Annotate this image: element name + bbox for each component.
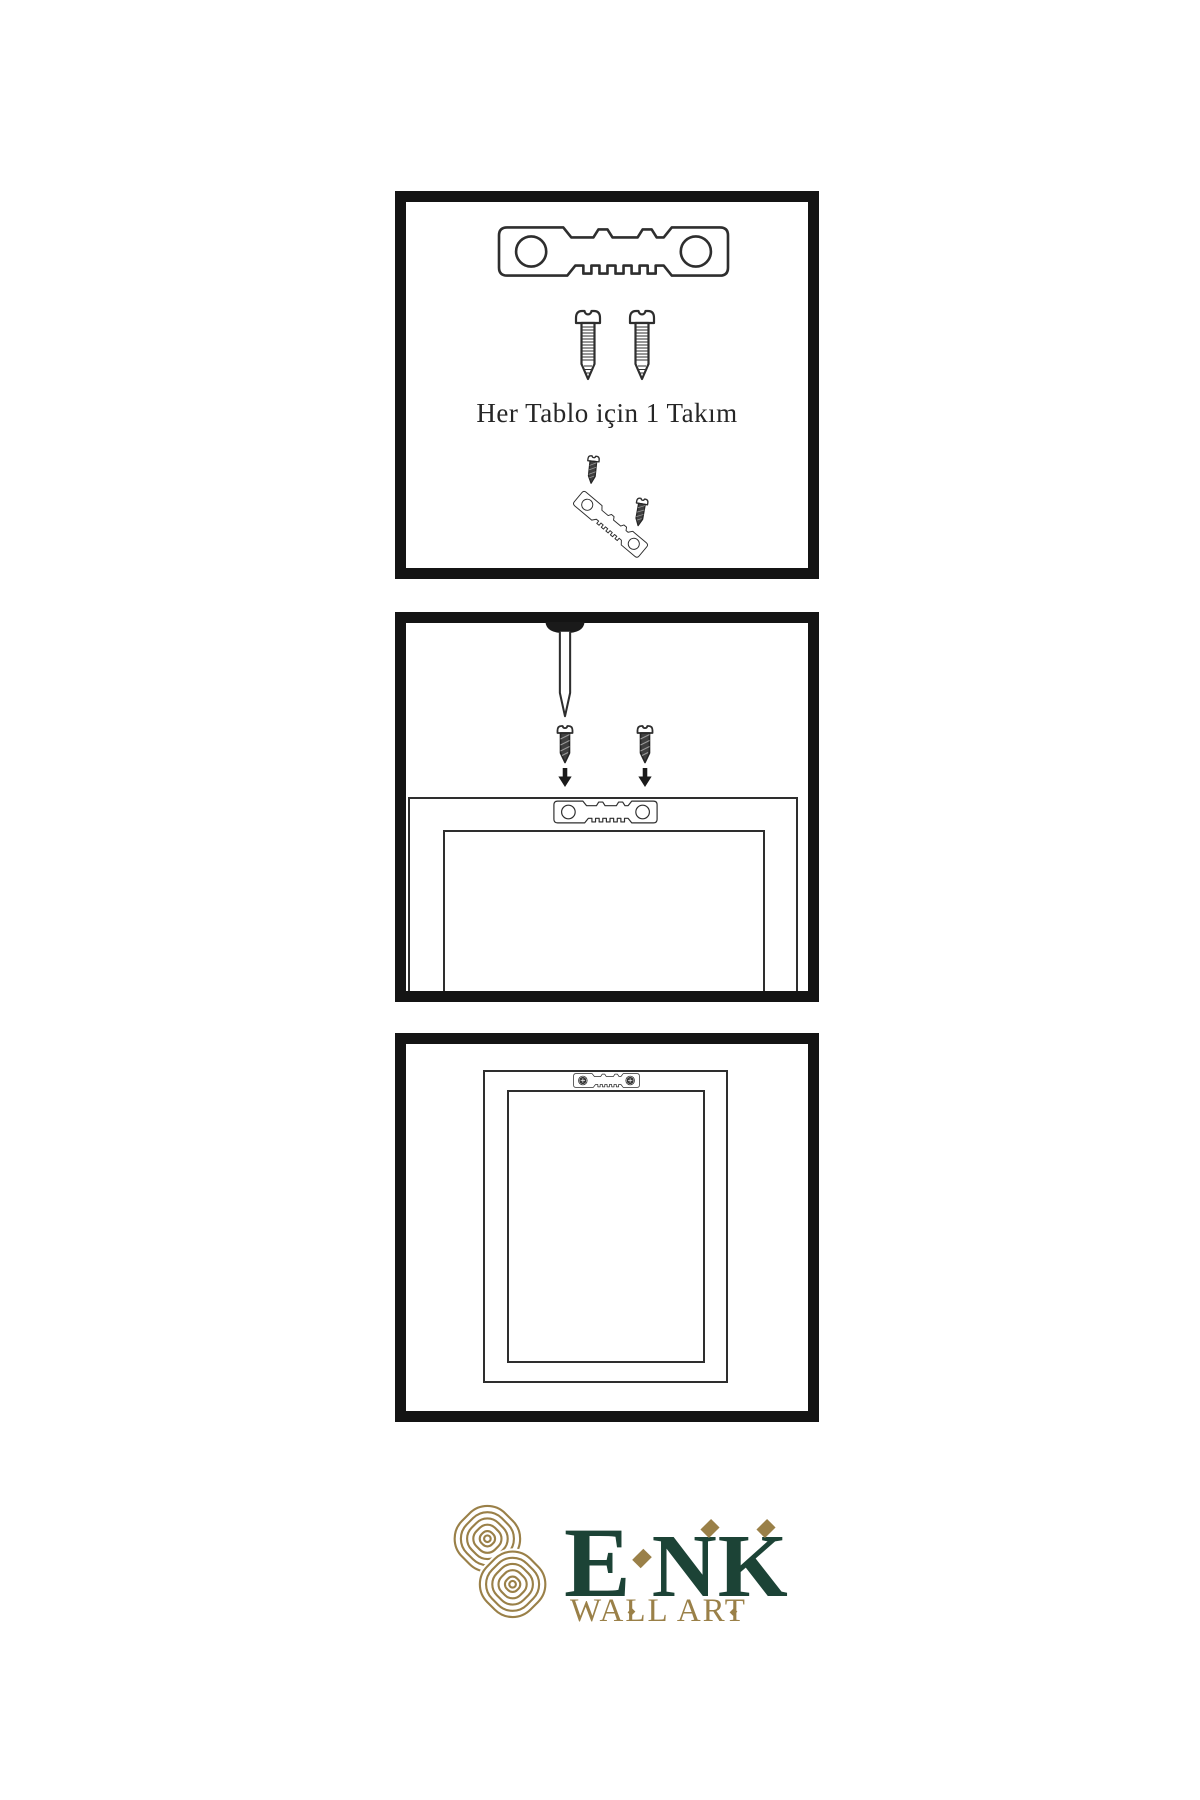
kit-caption: Her Tablo için 1 Takım: [406, 398, 808, 429]
panel-kit-contents: Her Tablo için 1 Takım: [395, 191, 819, 579]
nail-icon: [542, 622, 588, 719]
brand-subtitle: WALL ART: [570, 1593, 747, 1630]
panel-install-step: [395, 612, 819, 1002]
screw-icon: [573, 307, 603, 383]
panel-hang-step: [395, 1033, 819, 1422]
diamond-accent-icon: [632, 1549, 652, 1569]
sawtooth-hanger-mounted-icon: [573, 1073, 640, 1088]
screw-icon: [555, 723, 575, 765]
arrow-down-icon: [638, 768, 652, 787]
screw-small-icon: [583, 452, 601, 486]
screw-icon: [627, 307, 657, 383]
sawtooth-hanger-icon: [497, 225, 730, 278]
frame-inner-edge: [443, 830, 765, 991]
screw-icon: [635, 723, 655, 765]
screw-small-icon: [630, 494, 651, 530]
knot-logo-icon: [437, 1493, 563, 1630]
frame-inner-edge: [507, 1090, 705, 1363]
hanging-instructions-sheet: Her Tablo için 1 Takım: [0, 0, 1200, 1800]
sawtooth-hanger-icon: [553, 800, 658, 824]
arrow-down-icon: [558, 768, 572, 787]
